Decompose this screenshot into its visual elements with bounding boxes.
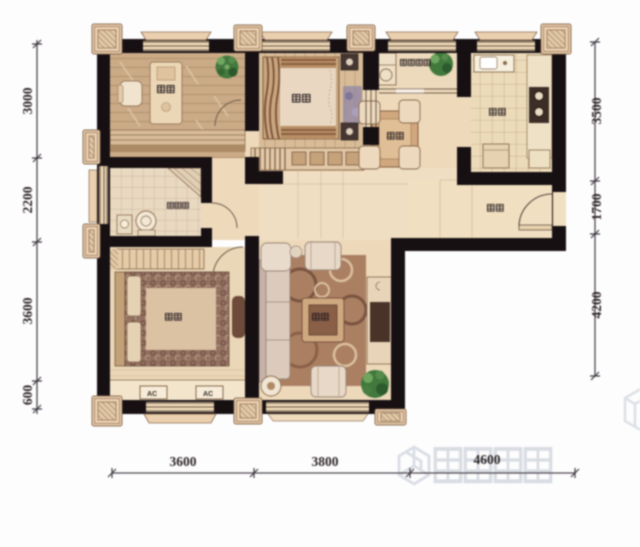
svg-text:3600: 3600 bbox=[20, 297, 35, 324]
svg-text:1700: 1700 bbox=[589, 193, 604, 220]
svg-text:2200: 2200 bbox=[20, 186, 35, 213]
svg-text:4200: 4200 bbox=[589, 291, 604, 318]
svg-text:AC: AC bbox=[203, 391, 213, 398]
svg-text:4600: 4600 bbox=[474, 452, 501, 467]
svg-text:3500: 3500 bbox=[589, 97, 604, 124]
svg-text:AC: AC bbox=[147, 391, 157, 398]
svg-text:3600: 3600 bbox=[170, 454, 197, 469]
svg-text:3000: 3000 bbox=[20, 87, 35, 114]
svg-text:600: 600 bbox=[20, 385, 35, 406]
svg-text:3800: 3800 bbox=[312, 454, 339, 469]
